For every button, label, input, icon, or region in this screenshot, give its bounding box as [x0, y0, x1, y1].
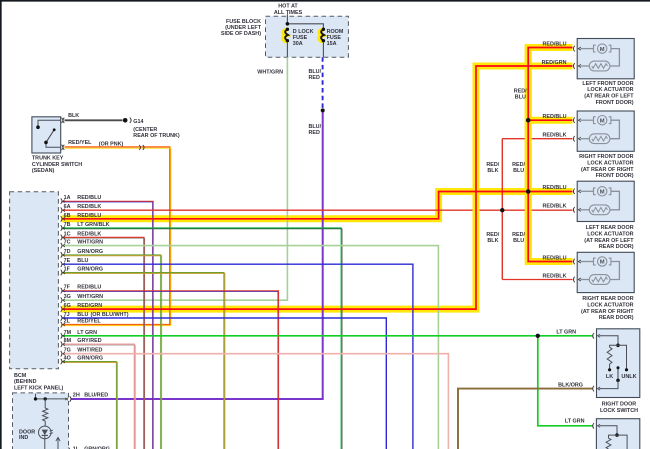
svg-text:FUSE BLOCK: FUSE BLOCK	[226, 19, 261, 25]
svg-text:2L: 2L	[64, 319, 71, 325]
svg-text:LT GRN: LT GRN	[556, 329, 576, 335]
svg-text:7G: 7G	[64, 348, 71, 354]
svg-text:LT GRN/BLK: LT GRN/BLK	[77, 222, 109, 228]
svg-text:(OR PNK): (OR PNK)	[99, 141, 124, 147]
svg-text:LOCK ACTUATOR: LOCK ACTUATOR	[587, 231, 633, 237]
svg-text:RED/GRN: RED/GRN	[77, 303, 102, 309]
svg-text:BLK: BLK	[487, 238, 498, 244]
svg-text:1C: 1C	[64, 231, 71, 237]
svg-text:BLU: BLU	[77, 258, 88, 264]
svg-text:1F: 1F	[64, 267, 71, 273]
svg-text:FRONT DOOR): FRONT DOOR)	[596, 173, 634, 179]
svg-text:BLU: BLU	[515, 94, 526, 100]
svg-text:LEFT REAR DOOR: LEFT REAR DOOR	[586, 225, 634, 231]
svg-text:WHT/GRN: WHT/GRN	[77, 240, 103, 246]
svg-text:FRONT DOOR): FRONT DOOR)	[596, 100, 634, 106]
svg-text:RED/BLU: RED/BLU	[77, 285, 101, 291]
svg-text:BLK: BLK	[487, 168, 498, 174]
svg-text:M: M	[600, 47, 605, 53]
svg-text:15A: 15A	[327, 41, 337, 47]
svg-text:M: M	[600, 190, 605, 196]
svg-text:WHT/GRN: WHT/GRN	[77, 294, 103, 300]
svg-text:RED/BLU: RED/BLU	[543, 255, 567, 261]
svg-text:LOCK ACTUATOR: LOCK ACTUATOR	[587, 160, 633, 166]
svg-text:GRN/ORG: GRN/ORG	[77, 249, 103, 255]
svg-text:7F: 7F	[64, 285, 71, 291]
svg-text:LOCK ACTUATOR: LOCK ACTUATOR	[587, 302, 633, 308]
svg-text:BCM: BCM	[14, 373, 27, 379]
svg-text:WHT/GRN: WHT/GRN	[257, 69, 283, 75]
svg-text:TRUNK KEY: TRUNK KEY	[32, 156, 64, 162]
svg-text:(UNDER LEFT: (UNDER LEFT	[225, 25, 262, 31]
svg-text:(OR BLU/WHT): (OR BLU/WHT)	[91, 312, 129, 318]
svg-text:7C: 7C	[64, 240, 71, 246]
svg-text:8M: 8M	[64, 338, 72, 344]
svg-text:(AT REAR OF RIGHT: (AT REAR OF RIGHT	[581, 167, 634, 173]
svg-text:RED/BLU: RED/BLU	[77, 195, 101, 201]
svg-text:LK: LK	[606, 374, 613, 380]
svg-text:BLK: BLK	[68, 113, 79, 119]
svg-text:HOT AT: HOT AT	[278, 4, 298, 10]
svg-text:7D: 7D	[64, 249, 71, 255]
svg-text:(AT REAR OF RIGHT: (AT REAR OF RIGHT	[581, 309, 634, 315]
svg-text:6A: 6A	[64, 204, 71, 210]
svg-text:LEFT KICK PANEL): LEFT KICK PANEL)	[14, 385, 64, 391]
svg-text:7B: 7B	[64, 222, 71, 228]
svg-text:BLK/ORG: BLK/ORG	[558, 382, 583, 388]
svg-text:RED/BLU: RED/BLU	[543, 41, 567, 47]
svg-text:2H: 2H	[73, 392, 80, 398]
svg-text:WHT/RED: WHT/RED	[77, 348, 102, 354]
svg-text:(AT REAR OF LEFT: (AT REAR OF LEFT	[584, 94, 634, 100]
svg-text:M: M	[600, 118, 605, 124]
svg-text:RED/GRN: RED/GRN	[542, 60, 567, 66]
svg-text:(SEDAN): (SEDAN)	[32, 168, 55, 174]
svg-text:ALL TIMES: ALL TIMES	[274, 10, 303, 16]
svg-text:1A: 1A	[64, 195, 71, 201]
svg-text:RED/BLU: RED/BLU	[543, 185, 567, 191]
svg-text:IND: IND	[19, 435, 28, 441]
svg-text:RIGHT REAR DOOR: RIGHT REAR DOOR	[582, 296, 633, 302]
svg-text:GRN/ORG: GRN/ORG	[77, 356, 103, 362]
svg-text:RED/BLU: RED/BLU	[543, 114, 567, 120]
svg-text:6G: 6G	[64, 303, 71, 309]
svg-text:RED/BLK: RED/BLK	[77, 231, 101, 237]
svg-text:(BEHIND: (BEHIND	[14, 379, 37, 385]
svg-text:7E: 7E	[64, 258, 71, 264]
svg-text:LEFT FRONT DOOR: LEFT FRONT DOOR	[582, 81, 633, 87]
svg-text:6B: 6B	[64, 213, 71, 219]
svg-text:RED/YEL: RED/YEL	[68, 140, 92, 146]
svg-text:GRY/RED: GRY/RED	[77, 338, 101, 344]
svg-text:UNLK: UNLK	[621, 374, 636, 380]
svg-text:7J: 7J	[64, 312, 70, 318]
svg-text:RED: RED	[309, 130, 320, 136]
svg-text:3G: 3G	[64, 294, 71, 300]
svg-text:(CENTER: (CENTER	[133, 127, 157, 133]
svg-text:RED/BLK: RED/BLK	[77, 204, 101, 210]
svg-text:RED/BLK: RED/BLK	[543, 273, 567, 279]
svg-text:RED/YEL: RED/YEL	[77, 319, 101, 325]
svg-text:LT GRN: LT GRN	[565, 419, 585, 425]
svg-text:LT GRN: LT GRN	[77, 330, 97, 336]
svg-text:4O: 4O	[64, 356, 71, 362]
svg-text:SIDE OF DASH): SIDE OF DASH)	[221, 31, 261, 37]
svg-text:RIGHT DOOR: RIGHT DOOR	[602, 402, 637, 408]
svg-text:RED/BLK: RED/BLK	[543, 204, 567, 210]
svg-text:REAR OF TRUNK): REAR OF TRUNK)	[133, 133, 180, 139]
svg-text:G14: G14	[133, 119, 143, 125]
svg-text:RED/BLK: RED/BLK	[543, 133, 567, 139]
svg-text:LOCK ACTUATOR: LOCK ACTUATOR	[587, 87, 633, 93]
svg-text:GRN/ORG: GRN/ORG	[77, 267, 103, 273]
svg-text:RED/BLU: RED/BLU	[77, 213, 101, 219]
svg-text:LOCK SWITCH: LOCK SWITCH	[600, 408, 638, 414]
svg-text:BLU/RED: BLU/RED	[84, 392, 108, 398]
svg-text:REAR DOOR): REAR DOOR)	[599, 315, 634, 321]
svg-text:M: M	[600, 260, 605, 266]
svg-text:CYLINDER SWITCH: CYLINDER SWITCH	[32, 162, 82, 168]
svg-text:BLU: BLU	[513, 238, 524, 244]
svg-text:REAR DOOR): REAR DOOR)	[599, 244, 634, 250]
svg-text:BLU: BLU	[77, 312, 88, 318]
svg-text:RED: RED	[309, 75, 320, 81]
svg-text:7M: 7M	[64, 330, 72, 336]
svg-text:RIGHT FRONT DOOR: RIGHT FRONT DOOR	[579, 154, 634, 160]
svg-text:BLU: BLU	[513, 168, 524, 174]
svg-text:30A: 30A	[293, 41, 303, 47]
svg-text:(AT REAR OF LEFT: (AT REAR OF LEFT	[584, 238, 634, 244]
